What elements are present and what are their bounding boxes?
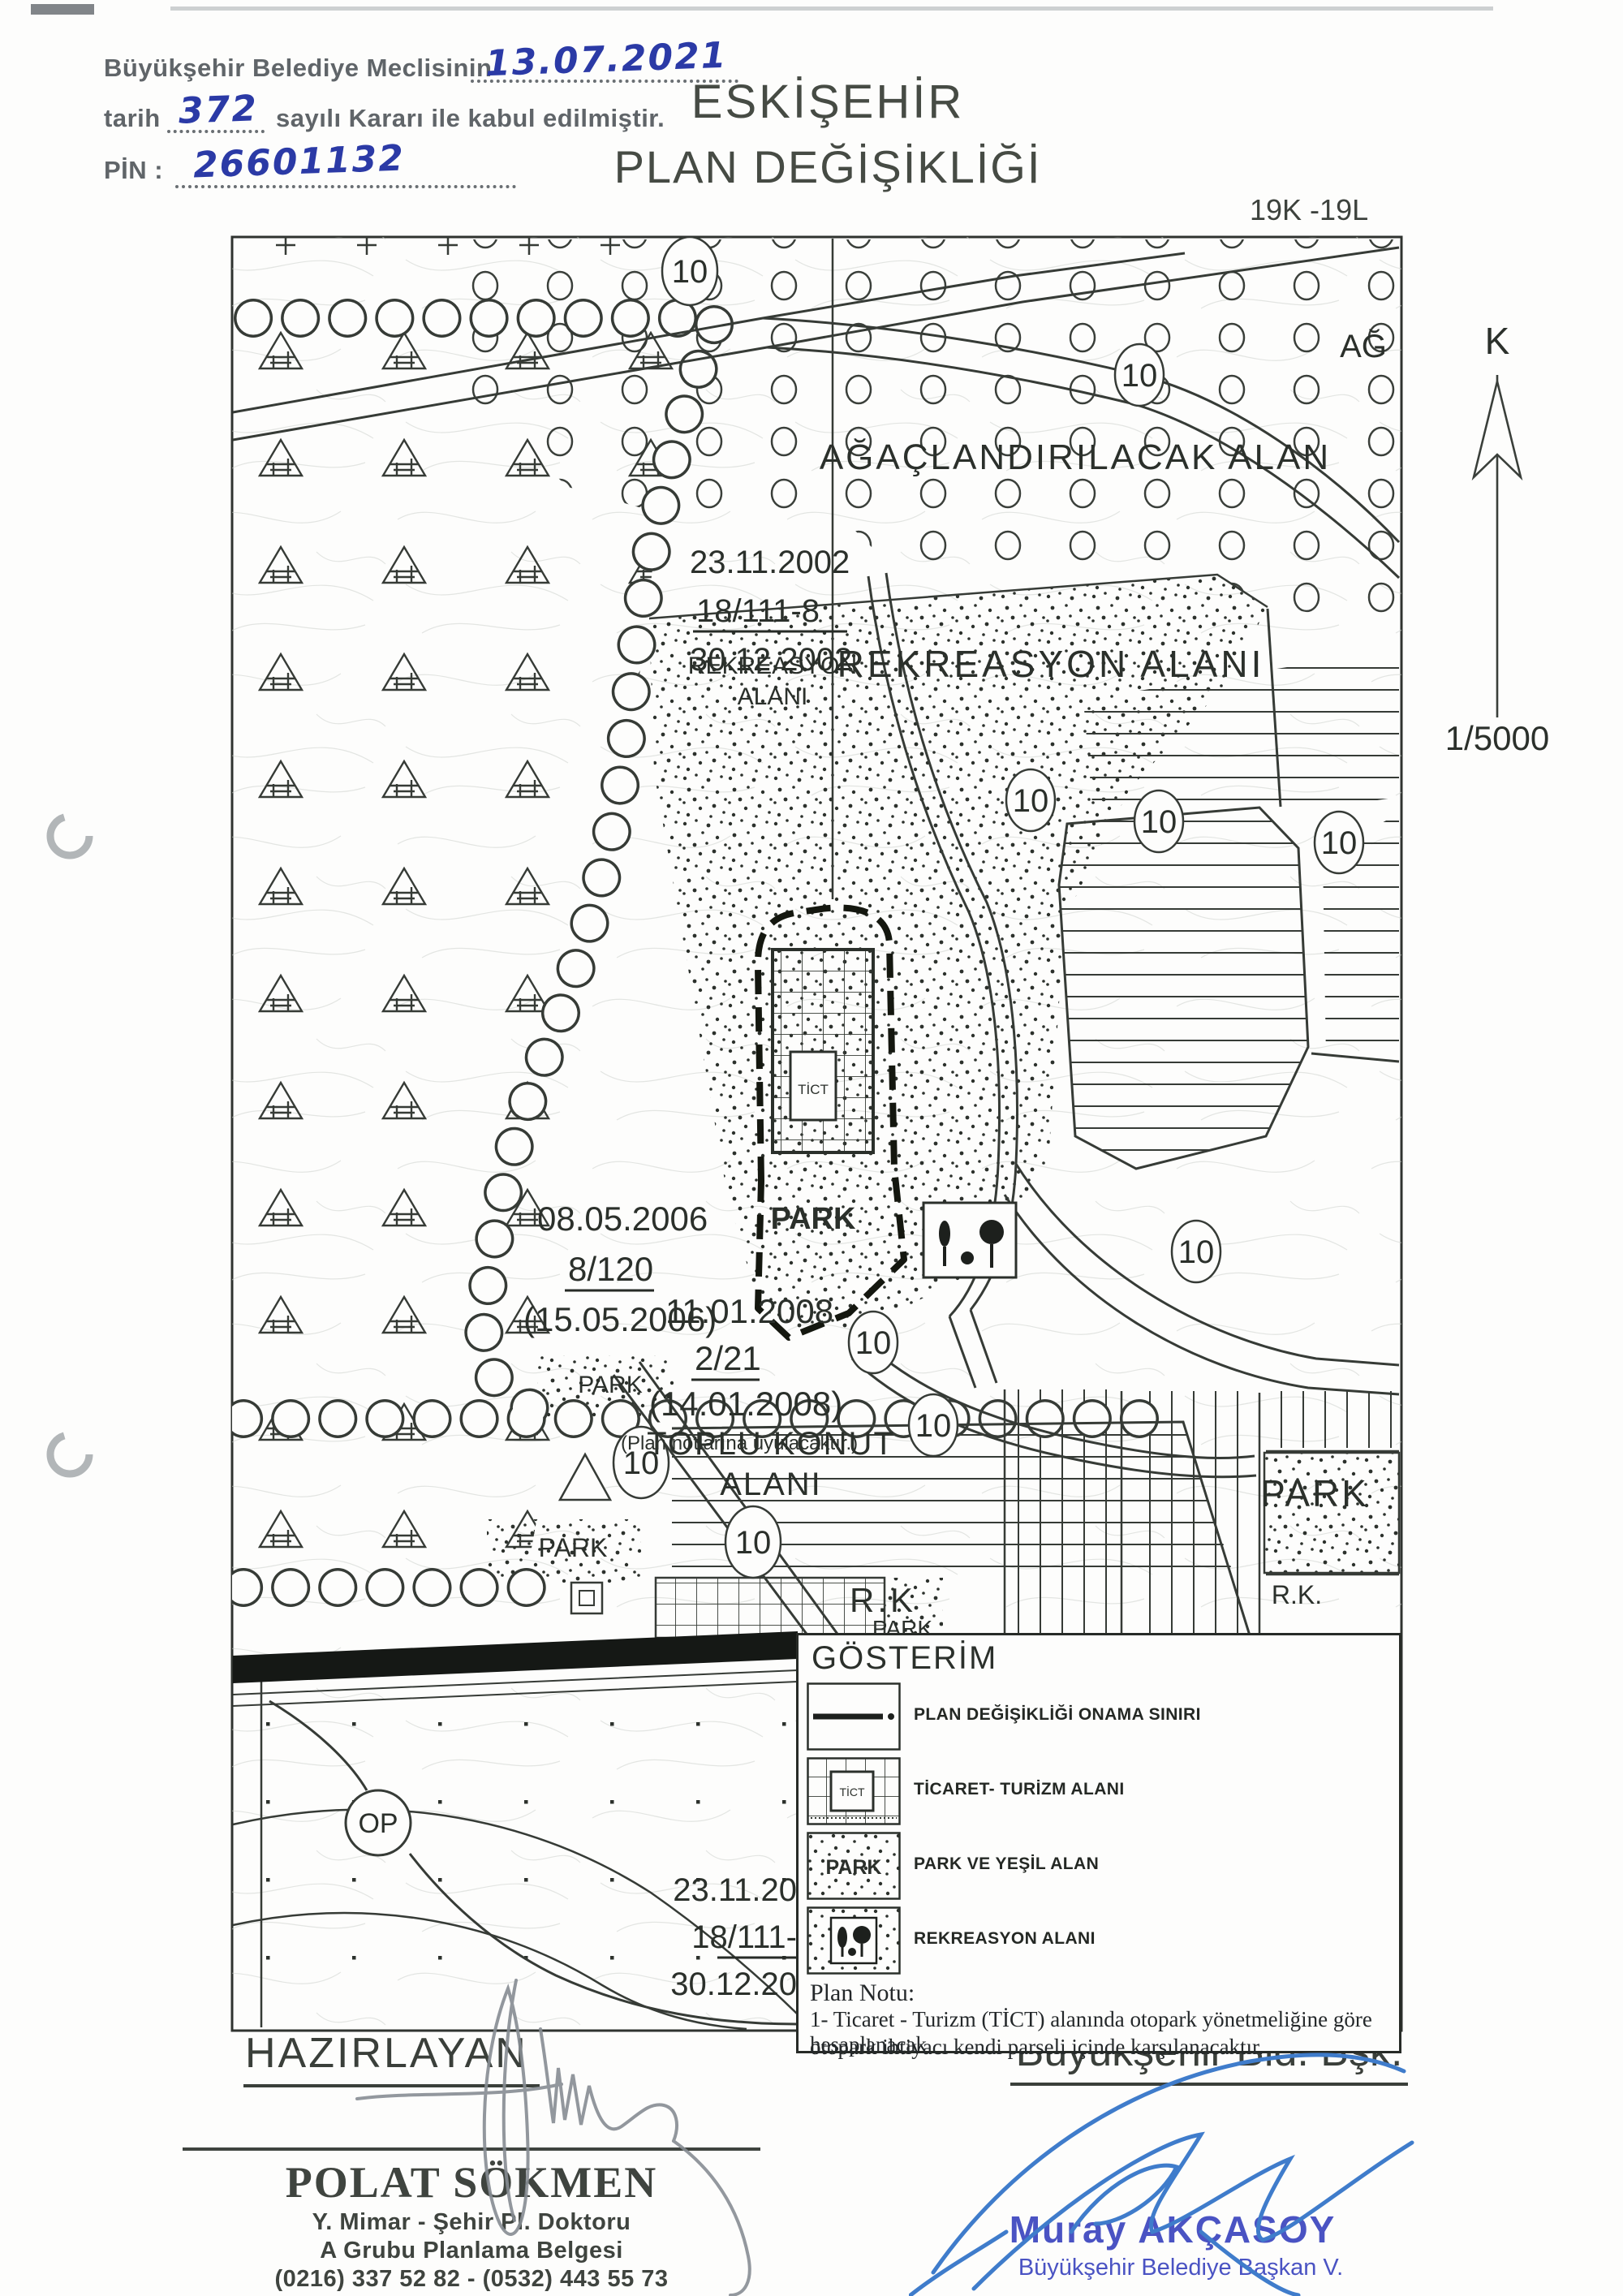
approval-line2-prefix: tarih	[104, 104, 161, 133]
planner-name: POLAT SÖKMEN	[183, 2157, 760, 2208]
punch-hole-icon	[50, 1435, 89, 1474]
plan-document-page: K 1/5000	[0, 0, 1623, 2296]
title-block: ESKİŞEHİR PLAN DEĞİŞİKLİĞİ	[572, 75, 1083, 193]
dotted-line	[175, 185, 516, 188]
svg-text:10: 10	[915, 1408, 952, 1444]
page-title-doc: PLAN DEĞİŞİKLİĞİ	[572, 140, 1083, 193]
revision-4-ref: 18/111-	[691, 1919, 797, 1955]
approver-role-stamp: Büyükşehir Belediye Başkan V.	[994, 2255, 1367, 2281]
tict-swatch-label: TİCT	[839, 1785, 865, 1798]
approval-pin-handwritten: 26601132	[192, 137, 406, 186]
legend-item-boundary: PLAN DEĞİŞİKLİĞİ ONAMA SINIRI	[807, 1682, 1391, 1752]
approval-number-handwritten: 372	[178, 88, 259, 131]
revision-3-date2: (14.01.2008)	[649, 1385, 842, 1423]
boundary-swatch-icon	[807, 1682, 901, 1751]
legend-box: GÖSTERİM PLAN DEĞİŞİKLİĞİ ONAMA SINIRI T…	[796, 1633, 1401, 2053]
revision-2-ref: 8/120	[568, 1250, 653, 1288]
afforestation-clipped-label: AĞ	[1340, 328, 1387, 364]
planner-certificate: A Grubu Planlama Belgesi	[183, 2238, 760, 2264]
legend-title: GÖSTERİM	[811, 1640, 997, 1677]
planner-title: Y. Mimar - Şehir Pl. Doktoru	[183, 2209, 760, 2236]
svg-text:10: 10	[1121, 358, 1158, 394]
prepared-by-heading: HAZIRLAYAN	[243, 2029, 540, 2087]
revision-4-date: 23.11.20	[673, 1872, 797, 1908]
park-label-left: PARK	[539, 1533, 608, 1562]
north-label: K	[1485, 320, 1510, 362]
tict-map-label: TİCT	[798, 1082, 829, 1097]
rk-label-right: R.K.	[1272, 1580, 1322, 1609]
afforestation-label: AĞAÇLANDIRILACAK ALAN	[820, 437, 1331, 477]
revision-3-ref: 2/21	[695, 1339, 761, 1377]
revision-2-date: 08.05.2006	[537, 1200, 708, 1238]
recreation-big-label: REKREASYON ALANI	[837, 643, 1265, 685]
park-swatch-label: PARK	[826, 1856, 882, 1879]
road-width-label: 10	[672, 254, 708, 290]
revision-3-date: 11.01.2008	[665, 1292, 833, 1330]
legend-item-label: REKREASYON ALANI	[914, 1929, 1096, 1949]
revision-4-date2: 30.12.20	[670, 1966, 797, 2002]
svg-text:10: 10	[1178, 1234, 1215, 1270]
revision-3-note: (Plan notlarına uyulacaktır.)	[621, 1432, 858, 1454]
revision-1-ref: 18/111-8	[696, 593, 820, 629]
approver-name-stamp: Muray AKÇASOY	[994, 2208, 1351, 2251]
legend-item-label: TİCARET- TURİZM ALANI	[914, 1780, 1125, 1799]
svg-text:10: 10	[1013, 783, 1049, 819]
svg-text:10: 10	[855, 1325, 892, 1361]
op-label: OP	[358, 1808, 398, 1839]
legend-item-commerce: TİCT TİCARET- TURİZM ALANI	[807, 1757, 1391, 1827]
planner-stamp: POLAT SÖKMEN Y. Mimar - Şehir Pl. Doktor…	[183, 2147, 760, 2293]
park-label-center: PARK	[771, 1202, 856, 1236]
commerce-swatch-icon: TİCT	[807, 1757, 901, 1825]
plan-note-line2: otopark ihtiyacı kendi parseli içinde ka…	[810, 2035, 1264, 2060]
scale-label: 1/5000	[1445, 719, 1549, 757]
revision-1-date2: 30.12.2002	[690, 642, 852, 678]
page-title-city: ESKİŞEHİR	[572, 75, 1083, 129]
park-swatch-icon: PARK	[807, 1832, 901, 1900]
recreation-icon	[923, 1203, 1016, 1277]
approval-line3-prefix: PİN :	[104, 156, 163, 185]
legend-item-label: PARK VE YEŞİL ALAN	[914, 1854, 1099, 1874]
svg-text:10: 10	[1321, 825, 1358, 861]
sheet-code: 19K -19L	[1250, 193, 1412, 227]
north-arrow-icon	[1474, 375, 1521, 717]
legend-item-label: PLAN DEĞİŞİKLİĞİ ONAMA SINIRI	[914, 1705, 1201, 1725]
plan-note-title: Plan Notu:	[810, 1979, 915, 2007]
park-label-small: PARK	[578, 1372, 642, 1398]
legend-item-recreation: REKREASYON ALANI	[807, 1906, 1391, 1976]
approval-line1-prefix: Büyükşehir Belediye Meclisinin	[104, 54, 492, 83]
rk-label-center: R.K	[850, 1581, 916, 1619]
recreation-small-label-2: ALANI	[738, 683, 808, 710]
planner-phone: (0216) 337 52 82 - (0532) 443 55 73	[183, 2266, 760, 2293]
mass-housing-label-2: ALANI	[720, 1467, 822, 1502]
punch-hole-icon	[50, 816, 89, 855]
recreation-swatch-icon	[807, 1906, 901, 1975]
svg-text:10: 10	[1141, 804, 1177, 840]
revision-1-date: 23.11.2002	[690, 545, 850, 580]
legend-item-park: PARK PARK VE YEŞİL ALAN	[807, 1832, 1391, 1902]
svg-text:10: 10	[735, 1525, 772, 1561]
tict-block	[773, 950, 873, 1152]
park-label-right: PARK	[1260, 1472, 1369, 1514]
